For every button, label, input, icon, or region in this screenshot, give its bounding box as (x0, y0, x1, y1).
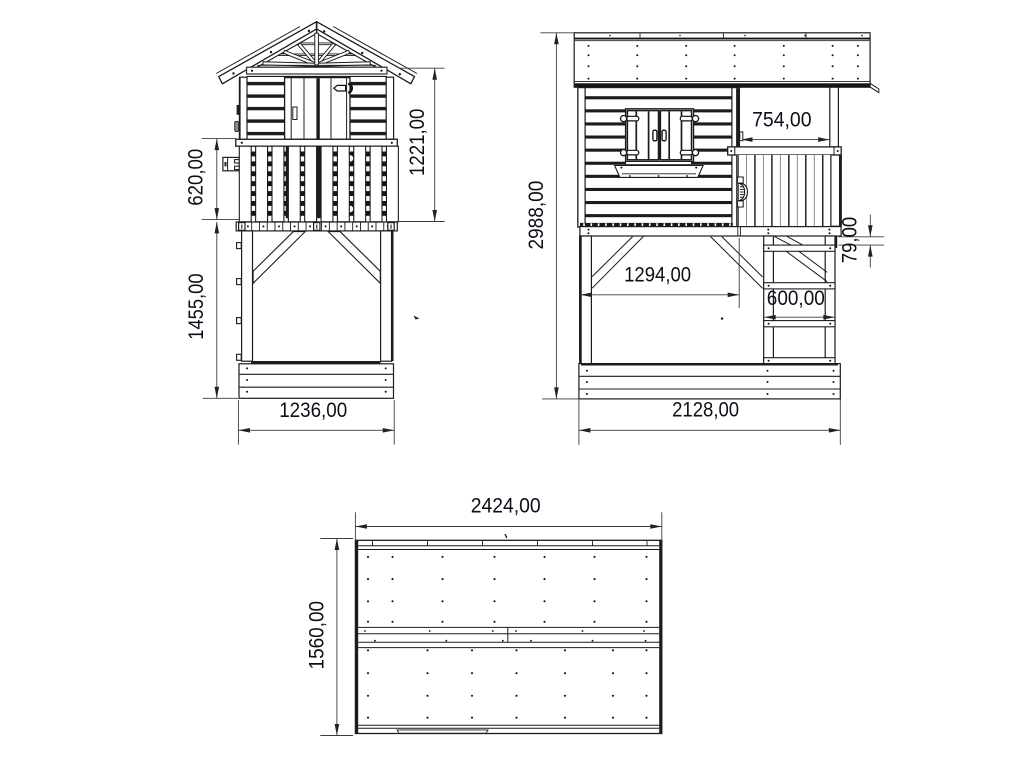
svg-text:1236,00: 1236,00 (279, 398, 347, 422)
svg-text:2128,00: 2128,00 (672, 397, 739, 421)
svg-text:600,00: 600,00 (767, 286, 825, 310)
svg-text:1455,00: 1455,00 (184, 273, 208, 339)
svg-text:1294,00: 1294,00 (624, 262, 691, 286)
svg-text:1560,00: 1560,00 (305, 601, 329, 670)
svg-text:620,00: 620,00 (183, 149, 207, 206)
svg-text:754,00: 754,00 (752, 107, 811, 131)
svg-text:79,00: 79,00 (838, 217, 862, 263)
svg-text:1221,00: 1221,00 (405, 109, 429, 176)
svg-text:2988,00: 2988,00 (524, 181, 548, 250)
svg-text:2424,00: 2424,00 (471, 494, 541, 518)
